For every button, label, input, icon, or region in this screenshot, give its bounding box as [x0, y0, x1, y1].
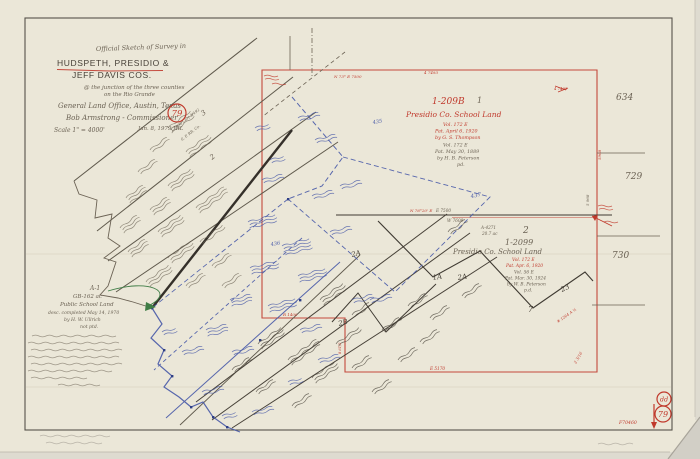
block-209b-pat1: Pat. April 6, 1920: [434, 129, 478, 135]
tract-a1-by: by H. W. Ullrich: [64, 317, 101, 323]
margin-number-634: 634: [616, 93, 633, 103]
block-209b-pd: pd.: [457, 162, 465, 168]
block-209b-file: 1-209B: [432, 97, 465, 107]
tract-1a: 1A: [432, 272, 443, 282]
bearing-top-red: N 73° E 7500: [333, 74, 362, 79]
title-county-line-1: HUDSPETH, PRESIDIO &: [57, 58, 169, 68]
red-tick-note: 4 7493: [553, 86, 568, 91]
bearing-mid-w7600: W 7600: [447, 218, 464, 223]
tract-a1-notptd: not ptd.: [80, 324, 99, 330]
abstract-4271-acres: 20.7 ac: [481, 231, 498, 236]
stamp-monogram-number: dd: [660, 395, 668, 403]
title-office: General Land Office, Austin, Texas: [58, 102, 181, 110]
abstract-4271: A-4271: [480, 225, 496, 230]
bearing-bottom-e5170: E 5170: [429, 366, 445, 371]
stamp-sheet-79-top-number: 79: [172, 109, 183, 119]
block-2099-pat2: Pat. Mar. 30, 1924: [504, 277, 546, 282]
tract-a1-desc: desc. completed May 14, 1970: [48, 310, 119, 316]
stamp-sheet-79-bottom-number: 79: [658, 410, 668, 419]
file-number: F70460: [618, 420, 637, 426]
title-commissioner: Bob Armstrong - Commissioner: [65, 114, 178, 122]
block-2099-vol: Vol. 172 E: [512, 258, 535, 263]
survey-2-number: 2: [522, 226, 529, 236]
block-2099-name: Presidio Co. School Land: [452, 248, 543, 256]
block-2099-pd: p.d.: [524, 289, 532, 294]
title-county-line-2: JEFF DAVIS COS.: [72, 70, 152, 80]
block-2099-vol2: Vol. 56 E: [514, 271, 535, 276]
block-209b-surveyor1: by G. S. Thompson: [435, 135, 480, 141]
block-209b-name: Presidio Co. School Land: [405, 110, 502, 119]
title-sub-2: on the Rio Grande: [104, 92, 156, 98]
block-209b-vol2: Vol. 172 E: [443, 143, 468, 149]
title-sub-1: @ the junction of the three counties: [84, 84, 185, 91]
title-scale: Scale 1" = 4000': [54, 127, 105, 134]
bearing-right-5968-pencil: 5 968: [585, 194, 590, 206]
bearing-r1400: R 1400: [282, 312, 298, 317]
scanned-survey-sheet: Official Sketch of Survey inHUDSPETH, PR…: [0, 0, 700, 459]
margin-number-730: 730: [612, 251, 629, 261]
survey-map-canvas: Official Sketch of Survey inHUDSPETH, PR…: [0, 0, 700, 459]
block-209b-pat2: Pat. May 30, 1889: [434, 149, 479, 155]
block-2099-file: 1-2099: [505, 238, 533, 247]
tract-a1-label: A-1: [89, 285, 100, 292]
survey-1-number: 1: [477, 96, 482, 105]
tract-a1-name: Public School Land: [59, 302, 114, 308]
block-2099-pat1: Pat. Apr. 6, 1920: [505, 264, 543, 269]
block-209b-vol: Vol. 172 E: [443, 122, 468, 128]
bearing-right-5968: 5968: [597, 149, 602, 160]
block-209b-surveyor2: by H. B. Peterson: [437, 156, 479, 162]
bearing-left-861: 8 61/2: [338, 342, 342, 354]
margin-number-729: 729: [625, 172, 642, 182]
bearing-mid-red: N 76°20' E: [409, 208, 432, 213]
tract-a1-acres: GB-162 ac: [73, 294, 102, 300]
bearing-top-red-2: 4 7493: [423, 70, 438, 75]
block-2099-surveyor: by W. B. Peterson: [507, 283, 546, 288]
bearing-mid-e7500: E 7500: [435, 208, 451, 213]
